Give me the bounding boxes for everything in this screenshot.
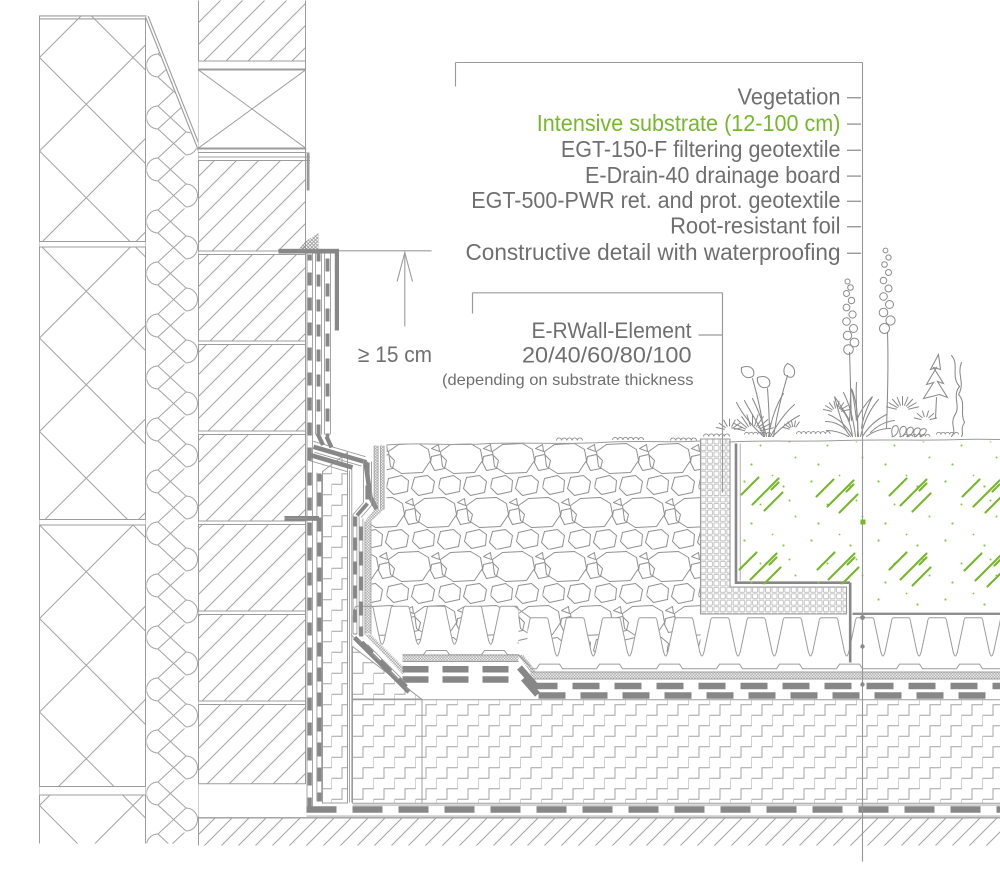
svg-text:E-Drain-40 drainage board: E-Drain-40 drainage board [585, 162, 841, 188]
svg-text:E-RWall-Element: E-RWall-Element [532, 318, 692, 343]
svg-text:≥ 15 cm: ≥ 15 cm [358, 342, 432, 367]
svg-text:Root-resistant foil: Root-resistant foil [670, 213, 840, 239]
svg-text:Constructive detail with water: Constructive detail with waterproofing [466, 239, 841, 265]
svg-text:EGT-500-PWR ret. and prot. geo: EGT-500-PWR ret. and prot. geotextile [471, 187, 840, 213]
svg-text:(depending on substrate thickn: (depending on substrate thickness [442, 372, 694, 389]
svg-text:Intensive substrate (12-100 cm: Intensive substrate (12-100 cm) [537, 110, 841, 136]
svg-text:Vegetation: Vegetation [738, 84, 841, 110]
svg-text:EGT-150-F filtering geotextile: EGT-150-F filtering geotextile [561, 136, 841, 162]
svg-text:20/40/60/80/100: 20/40/60/80/100 [522, 343, 692, 368]
